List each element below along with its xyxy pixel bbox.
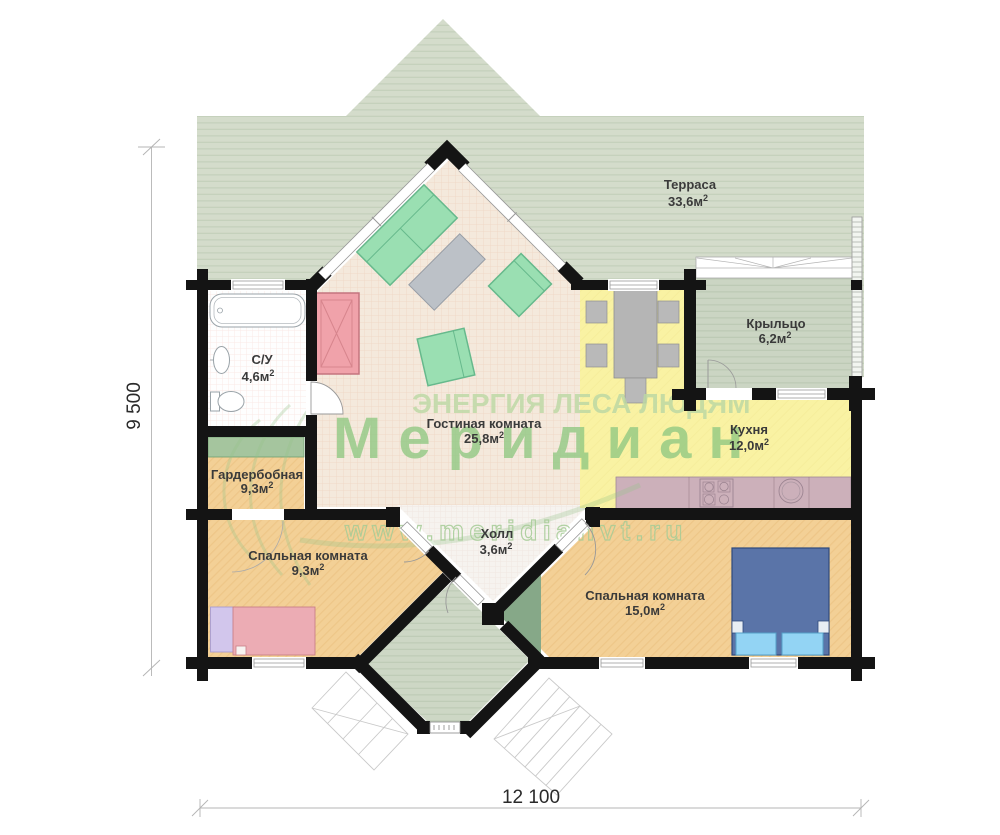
svg-text:9 500: 9 500 <box>124 382 145 430</box>
svg-text:Кухня: Кухня <box>730 422 768 437</box>
svg-text:Крыльцо: Крыльцо <box>746 316 805 331</box>
svg-text:Гостиная комната: Гостиная комната <box>427 416 543 431</box>
svg-text:Спальная комната: Спальная комната <box>248 548 368 563</box>
svg-text:25,8м2: 25,8м2 <box>464 430 504 446</box>
svg-text:12 100: 12 100 <box>502 787 560 808</box>
svg-text:Гардербобная: Гардербобная <box>211 467 303 482</box>
svg-text:Холл: Холл <box>481 526 514 541</box>
svg-text:33,6м2: 33,6м2 <box>668 193 708 209</box>
svg-text:Терраса: Терраса <box>664 177 717 192</box>
svg-text:Меридиан: Меридиан <box>333 406 760 471</box>
svg-text:Спальная комната: Спальная комната <box>585 588 705 603</box>
svg-text:15,0м2: 15,0м2 <box>625 602 665 618</box>
svg-text:С/У: С/У <box>251 352 273 367</box>
svg-text:12,0м2: 12,0м2 <box>729 437 769 453</box>
